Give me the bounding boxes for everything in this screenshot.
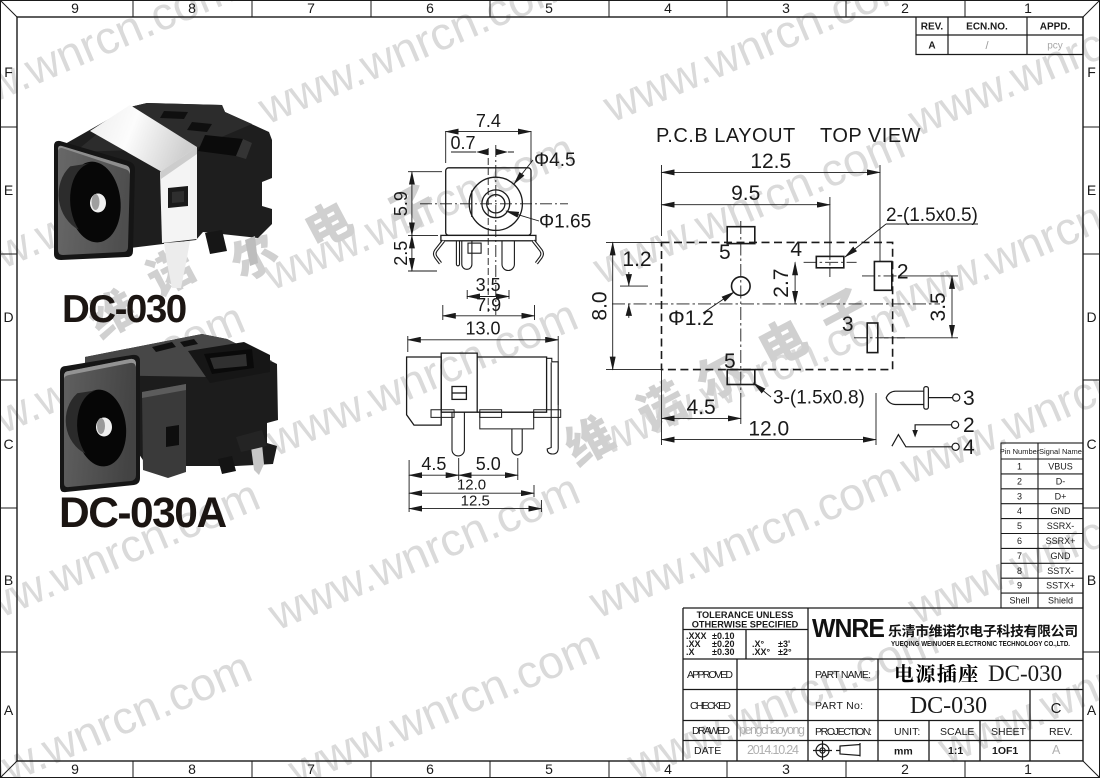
svg-text:WNRE: WNRE <box>812 613 885 643</box>
svg-text:A: A <box>1087 702 1097 718</box>
svg-text:PART No:: PART No: <box>815 700 863 712</box>
svg-text:1: 1 <box>1024 761 1032 777</box>
svg-text:SSTX+: SSTX+ <box>1046 581 1075 591</box>
svg-text:CHECKED: CHECKED <box>690 700 731 712</box>
svg-text:2: 2 <box>1017 476 1022 486</box>
svg-text:DC-030A: DC-030A <box>59 490 226 537</box>
svg-text:5.9: 5.9 <box>391 191 411 216</box>
svg-text:2-(1.5x0.5): 2-(1.5x0.5) <box>886 205 978 226</box>
svg-text:.XX°: .XX° <box>752 647 771 657</box>
svg-text:5: 5 <box>545 761 553 777</box>
svg-text:C: C <box>3 436 13 452</box>
svg-text:A: A <box>1052 743 1061 757</box>
svg-text:TOLERANCE UNLESS: TOLERANCE UNLESS <box>697 610 794 620</box>
svg-text:Φ1.65: Φ1.65 <box>539 212 591 233</box>
svg-text:3: 3 <box>963 387 975 410</box>
svg-text:9: 9 <box>1017 581 1022 591</box>
svg-text:GND: GND <box>1051 551 1072 561</box>
svg-text:SSRX+: SSRX+ <box>1046 536 1076 546</box>
svg-text:1:1: 1:1 <box>948 745 963 757</box>
svg-text:DRAWED: DRAWED <box>692 725 730 737</box>
svg-text:2: 2 <box>901 761 909 777</box>
svg-text:F: F <box>4 64 13 80</box>
svg-text:E: E <box>4 182 13 198</box>
svg-text:4: 4 <box>664 761 672 777</box>
svg-text:GND: GND <box>1051 506 1072 516</box>
svg-text:Shell: Shell <box>1009 596 1029 606</box>
svg-text:SSRX-: SSRX- <box>1047 521 1075 531</box>
svg-text:7: 7 <box>307 761 315 777</box>
svg-text:12.0: 12.0 <box>748 418 789 441</box>
svg-text:5.0: 5.0 <box>476 454 501 474</box>
svg-text:±0.30: ±0.30 <box>712 647 734 657</box>
svg-text:2.5: 2.5 <box>391 241 411 266</box>
svg-text:D: D <box>1086 309 1096 325</box>
svg-text:APPROVED: APPROVED <box>687 669 733 681</box>
svg-text:4: 4 <box>963 436 975 459</box>
svg-text:3: 3 <box>782 761 790 777</box>
svg-text:4.5: 4.5 <box>687 396 716 419</box>
svg-text:1: 1 <box>1017 462 1022 472</box>
svg-text:3: 3 <box>1017 491 1022 501</box>
svg-text:3.5: 3.5 <box>476 275 501 295</box>
svg-text:REV.: REV. <box>1049 726 1073 738</box>
svg-text:13.0: 13.0 <box>465 319 500 339</box>
svg-text:Φ4.5: Φ4.5 <box>534 150 576 171</box>
svg-text:±2°: ±2° <box>778 647 792 657</box>
svg-text:DATE: DATE <box>694 745 721 757</box>
svg-text:6: 6 <box>1017 536 1022 546</box>
svg-text:2: 2 <box>897 260 909 283</box>
svg-text:YUEQING WEINUOER ELECTRONIC TE: YUEQING WEINUOER ELECTRONIC TECHNOLOGY C… <box>891 639 1070 648</box>
svg-text:UNIT:: UNIT: <box>894 726 920 738</box>
svg-text:4.5: 4.5 <box>421 454 446 474</box>
svg-text:5: 5 <box>719 241 731 264</box>
svg-text:D+: D+ <box>1055 491 1067 501</box>
svg-text:ECN.NO.: ECN.NO. <box>966 22 1008 33</box>
svg-text:DC-030: DC-030 <box>910 693 987 719</box>
svg-text:C: C <box>1051 700 1062 717</box>
svg-text:PART NAME:: PART NAME: <box>815 669 871 681</box>
svg-text:2: 2 <box>963 414 975 437</box>
svg-text:4: 4 <box>790 238 802 261</box>
svg-text:5: 5 <box>1017 521 1022 531</box>
svg-text:D-: D- <box>1056 476 1066 486</box>
svg-text:D: D <box>3 309 13 325</box>
svg-text:SSTX-: SSTX- <box>1047 566 1074 576</box>
svg-text:E: E <box>1087 182 1096 198</box>
svg-text:3.5: 3.5 <box>927 292 950 321</box>
svg-text:5: 5 <box>724 350 736 373</box>
svg-text:pcy: pcy <box>1047 41 1063 52</box>
svg-text:0.7: 0.7 <box>450 133 475 153</box>
svg-text:C: C <box>1086 436 1096 452</box>
svg-text:5: 5 <box>545 0 553 16</box>
svg-text:pengchaoyong: pengchaoyong <box>739 723 805 737</box>
svg-text:P.C.B LAYOUT TOP VIEW: P.C.B LAYOUT TOP VIEW <box>656 125 921 147</box>
svg-text:SCALE: SCALE <box>940 726 974 738</box>
svg-text:12.5: 12.5 <box>461 493 490 510</box>
svg-text:B: B <box>1087 572 1096 588</box>
svg-text:A: A <box>4 702 14 718</box>
svg-text:.X: .X <box>686 647 695 657</box>
svg-text:4: 4 <box>1017 506 1022 516</box>
svg-text:6: 6 <box>426 0 434 16</box>
svg-text:SHEET: SHEET <box>991 726 1027 738</box>
svg-text:OTHERWISE SPECIFIED: OTHERWISE SPECIFIED <box>692 620 799 630</box>
svg-text:7.4: 7.4 <box>476 111 501 131</box>
svg-text:3: 3 <box>782 0 790 16</box>
svg-text:APPD.: APPD. <box>1040 22 1071 33</box>
svg-text:A: A <box>928 41 935 52</box>
svg-text:2.7: 2.7 <box>770 268 793 297</box>
svg-text:9: 9 <box>71 0 79 16</box>
svg-text:12.0: 12.0 <box>457 477 486 494</box>
svg-text:1: 1 <box>1024 0 1032 16</box>
svg-text:6: 6 <box>426 761 434 777</box>
svg-text:1OF1: 1OF1 <box>992 745 1018 757</box>
svg-text:4: 4 <box>664 0 672 16</box>
svg-text:Shield: Shield <box>1048 596 1073 606</box>
svg-text:Pin Number: Pin Number <box>1000 447 1040 456</box>
svg-text:Signal Name: Signal Name <box>1039 447 1082 456</box>
svg-text:1.2: 1.2 <box>622 248 651 271</box>
svg-text:DC-030: DC-030 <box>62 288 186 331</box>
svg-text:Φ1.2: Φ1.2 <box>668 307 714 330</box>
svg-text:9: 9 <box>71 761 79 777</box>
svg-text:3: 3 <box>842 313 854 336</box>
svg-text:PROJECTION:: PROJECTION: <box>815 726 872 738</box>
svg-text:DC-030: DC-030 <box>988 661 1062 686</box>
svg-text:2: 2 <box>901 0 909 16</box>
svg-text:7: 7 <box>307 0 315 16</box>
svg-text:mm: mm <box>894 746 913 758</box>
svg-text:REV.: REV. <box>921 22 944 33</box>
svg-text:VBUS: VBUS <box>1048 462 1073 472</box>
svg-text:7.9: 7.9 <box>476 295 501 315</box>
svg-text:8: 8 <box>1017 566 1022 576</box>
svg-text:9.5: 9.5 <box>731 182 760 205</box>
svg-text:8: 8 <box>188 761 196 777</box>
svg-text:7: 7 <box>1017 551 1022 561</box>
svg-text:3-(1.5x0.8): 3-(1.5x0.8) <box>773 388 865 409</box>
svg-text:2014.10.24: 2014.10.24 <box>747 743 799 757</box>
svg-text:F: F <box>1087 64 1096 80</box>
svg-text:12.5: 12.5 <box>750 150 791 173</box>
svg-text:8: 8 <box>188 0 196 16</box>
svg-text:B: B <box>4 572 13 588</box>
svg-text:8.0: 8.0 <box>589 291 612 320</box>
